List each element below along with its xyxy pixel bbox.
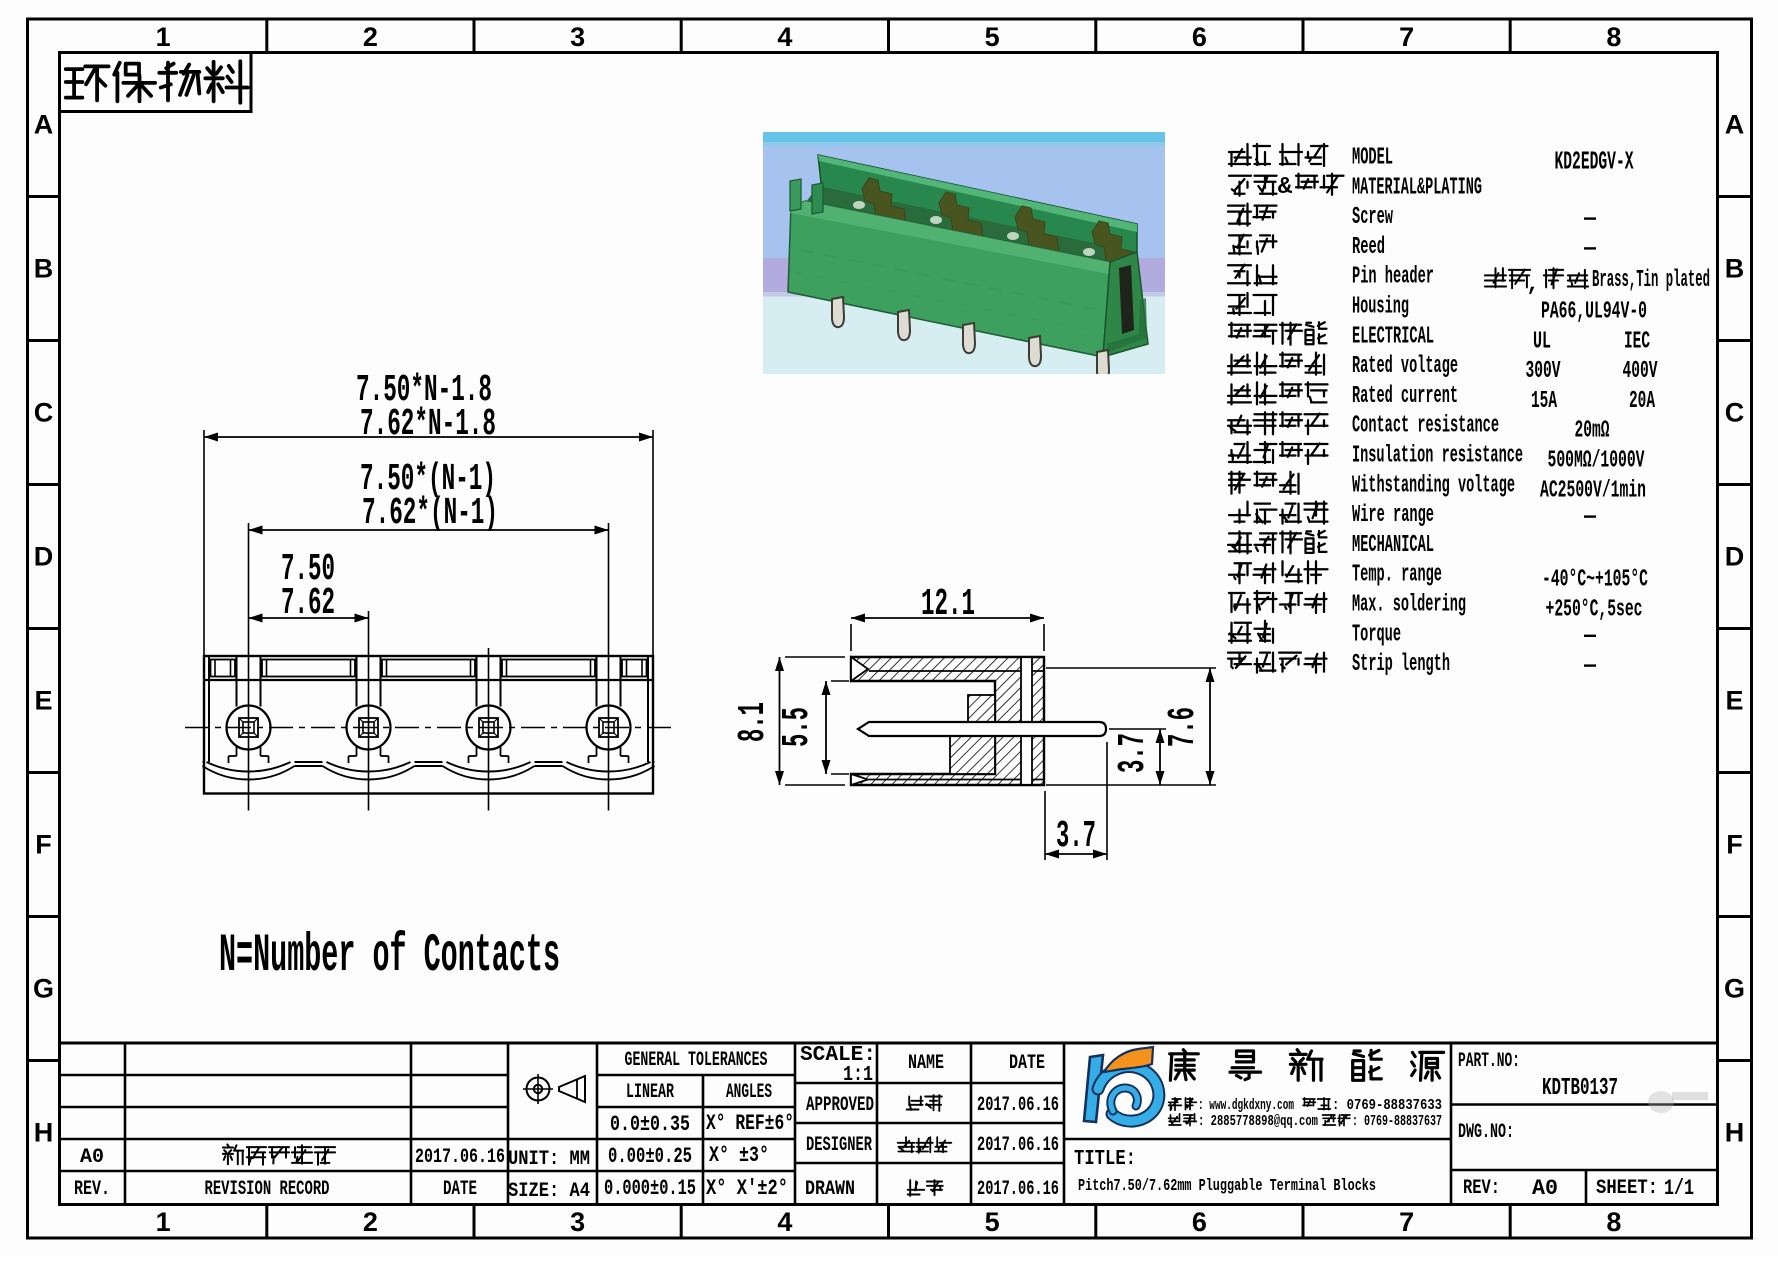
svg-text:IEC: IEC [1624,328,1650,355]
svg-text:F: F [1726,830,1743,860]
svg-text:A: A [34,110,54,140]
svg-text:2017.06.16: 2017.06.16 [415,1146,505,1169]
svg-text:3: 3 [570,1207,585,1237]
svg-text:Insulation resistance: Insulation resistance [1352,443,1523,470]
svg-text:Brass,Tin plated: Brass,Tin plated [1592,267,1710,294]
svg-text:Pitch7.50/7.62mm Pluggable Ter: Pitch7.50/7.62mm Pluggable Terminal Bloc… [1078,1177,1376,1196]
svg-text:N=Number of Contacts: N=Number of Contacts [219,926,560,987]
svg-text:0.000±0.15: 0.000±0.15 [604,1176,696,1201]
svg-text:DRAWN: DRAWN [805,1178,855,1201]
svg-text:8.1: 8.1 [732,702,775,742]
svg-text:3: 3 [570,22,585,52]
svg-text:8: 8 [1606,22,1621,52]
svg-text:20mΩ: 20mΩ [1575,418,1610,445]
svg-text:: 0769-88837637: : 0769-88837637 [1352,1113,1442,1130]
svg-text:1: 1 [156,22,171,52]
svg-text:12.1: 12.1 [921,583,975,626]
svg-text:: www.dgkdxny.com: : www.dgkdxny.com [1198,1097,1294,1114]
svg-text:300V: 300V [1526,358,1561,385]
svg-text:4: 4 [777,1207,792,1237]
svg-text:4: 4 [777,22,792,52]
svg-text:C: C [1725,398,1745,428]
svg-text:DESIGNER: DESIGNER [806,1134,872,1157]
svg-text:Strip length: Strip length [1352,651,1450,678]
svg-text:15A: 15A [1531,388,1557,415]
svg-text:0.0±0.35: 0.0±0.35 [610,1112,690,1137]
svg-text:1:1: 1:1 [843,1064,873,1087]
svg-text:7.62*N-1.8: 7.62*N-1.8 [360,403,496,446]
svg-text:7.62*(N-1): 7.62*(N-1) [362,492,498,535]
svg-text:H: H [1725,1118,1745,1148]
svg-text:6: 6 [1192,22,1207,52]
svg-text:400V: 400V [1623,358,1658,385]
svg-text:Rated voltage: Rated voltage [1352,353,1458,380]
svg-text:PA66,UL94V-0: PA66,UL94V-0 [1541,299,1647,326]
svg-text:3.7: 3.7 [1112,733,1155,773]
svg-text:C: C [34,398,54,428]
svg-text:D: D [34,542,54,572]
svg-text:1: 1 [156,1207,171,1237]
svg-text:500MΩ/1000V: 500MΩ/1000V [1548,448,1645,475]
svg-text:&: & [1278,174,1293,201]
svg-text:7: 7 [1399,1207,1414,1237]
svg-text:Pin header: Pin header [1352,264,1434,291]
svg-text:UL: UL [1533,328,1551,355]
svg-text:-40°C~+105°C: -40°C~+105°C [1542,567,1648,594]
svg-text:MODEL: MODEL [1352,145,1393,172]
svg-text:E: E [1725,686,1743,716]
svg-text:UNIT: MM: UNIT: MM [508,1148,590,1171]
svg-text:REVISION RECORD: REVISION RECORD [205,1178,330,1201]
svg-text:: 2885778898@qq.com: : 2885778898@qq.com [1198,1113,1318,1130]
svg-text:A0: A0 [80,1146,104,1169]
svg-text:A0: A0 [1532,1176,1558,1201]
svg-text:1/1: 1/1 [1664,1176,1694,1201]
svg-text:0.00±0.25: 0.00±0.25 [608,1144,692,1169]
svg-text:Reed: Reed [1352,234,1385,261]
svg-text:Screw: Screw [1352,204,1393,231]
svg-text:20A: 20A [1629,388,1655,415]
svg-text:5.5: 5.5 [776,707,819,747]
svg-text:SHEET:: SHEET: [1596,1177,1658,1200]
svg-text:2: 2 [363,1207,378,1237]
svg-text:F: F [35,830,52,860]
svg-text:8: 8 [1606,1207,1621,1237]
svg-text:GENERAL TOLERANCES: GENERAL TOLERANCES [625,1049,768,1072]
svg-text:5: 5 [985,22,1000,52]
svg-text:2017.06.16: 2017.06.16 [977,1134,1059,1157]
svg-text:LINEAR: LINEAR [626,1081,674,1104]
svg-text:B: B [1725,254,1745,284]
svg-text:TITLE:: TITLE: [1074,1148,1136,1171]
svg-text:G: G [1724,974,1745,1004]
svg-text:G: G [33,974,54,1004]
svg-text:REV.: REV. [74,1178,110,1201]
svg-text:DATE: DATE [443,1178,477,1201]
svg-text:Max. soldering: Max. soldering [1352,592,1466,619]
svg-text:X° REF±6°: X° REF±6° [706,1111,794,1136]
svg-text:SIZE: A4: SIZE: A4 [508,1180,590,1203]
svg-text:7: 7 [1399,22,1414,52]
svg-text:NAME: NAME [908,1052,944,1075]
svg-text:X° Xʹ±2°: X° Xʹ±2° [706,1176,788,1201]
svg-text:B: B [34,254,54,284]
svg-text:A: A [1725,110,1745,140]
svg-text:ANGLES: ANGLES [726,1081,772,1104]
svg-text:MATERIAL&PLATING: MATERIAL&PLATING [1352,174,1482,201]
svg-text:H: H [34,1118,54,1148]
svg-text:PART.NO:: PART.NO: [1458,1050,1520,1073]
svg-text:D: D [1725,542,1745,572]
svg-text:2017.06.16: 2017.06.16 [977,1094,1059,1117]
svg-text:Withstanding voltage: Withstanding voltage [1352,472,1515,499]
svg-text:DWG.NO:: DWG.NO: [1458,1121,1514,1144]
svg-text:+250°C,5sec: +250°C,5sec [1546,597,1643,624]
svg-text:6: 6 [1192,1207,1207,1237]
svg-text:E: E [34,686,52,716]
svg-text:REV:: REV: [1463,1177,1500,1200]
svg-text:AC2500V/1min: AC2500V/1min [1540,477,1646,504]
svg-text:ELECTRICAL: ELECTRICAL [1352,323,1434,350]
svg-text:KDTB0137: KDTB0137 [1542,1075,1618,1102]
svg-text:KD2EDGV-X: KD2EDGV-X [1555,147,1634,177]
svg-text:7.6: 7.6 [1162,707,1205,747]
svg-text:2: 2 [363,22,378,52]
svg-text:Contact resistance: Contact resistance [1352,413,1499,440]
svg-text:: 0769-88837633: : 0769-88837633 [1332,1097,1442,1114]
svg-text:5: 5 [985,1207,1000,1237]
svg-text:Housing: Housing [1352,294,1409,321]
svg-text:3.7: 3.7 [1056,815,1096,858]
svg-text:Temp. range: Temp. range [1352,562,1442,589]
svg-text:Rated current: Rated current [1352,383,1458,410]
svg-text:Torque: Torque [1352,621,1401,648]
svg-text:2017.06.16: 2017.06.16 [977,1178,1059,1201]
svg-text:MECHANICAL: MECHANICAL [1352,532,1434,559]
svg-text:APPROVED: APPROVED [806,1094,874,1117]
svg-text:,: , [1526,272,1539,297]
svg-text:Wire range: Wire range [1352,502,1434,529]
svg-text:X° ±3°: X° ±3° [709,1143,769,1168]
svg-text:DATE: DATE [1009,1052,1045,1075]
